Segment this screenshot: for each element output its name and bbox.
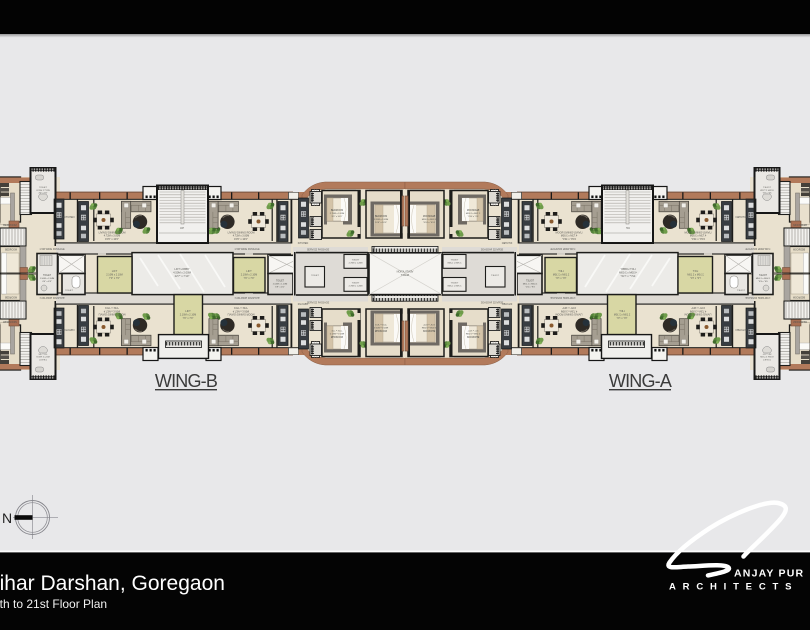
svg-text:3.20M x 3.05M: 3.20M x 3.05M [374, 219, 389, 221]
svg-text:BEDROOM: BEDROOM [331, 209, 343, 212]
svg-text:2.04M x 1.20M: 2.04M x 1.20M [273, 284, 288, 286]
svg-text:UP: UP [180, 226, 184, 230]
svg-text:4'0" x 6'9": 4'0" x 6'9" [42, 281, 52, 283]
svg-text:KITCHEN: KITCHEN [64, 216, 75, 219]
svg-text:4th to 21st Floor Plan: 4th to 21st Floor Plan [0, 597, 107, 611]
svg-text:6'9" x 4'0": 6'9" x 4'0" [275, 286, 285, 288]
svg-text:2.75M x 3.05M: 2.75M x 3.05M [330, 213, 345, 215]
svg-text:2.70M x 1.20M: 2.70M x 1.20M [349, 262, 363, 264]
svg-text:Vihar Darshan, Goregaon: Vihar Darshan, Goregaon [0, 572, 225, 595]
svg-text:WING-A: WING-A [609, 371, 672, 391]
svg-text:WING-B: WING-B [155, 371, 218, 391]
svg-text:1.5M WIDE PASSAGE: 1.5M WIDE PASSAGE [234, 248, 260, 251]
svg-text:7'0" x 7'0": 7'0" x 7'0" [109, 277, 120, 280]
svg-text:15'6" x 10'0": 15'6" x 10'0" [234, 238, 248, 241]
svg-text:2.70M x 1.20M: 2.70M x 1.20M [349, 285, 363, 287]
svg-text:TOILET: TOILET [311, 275, 319, 277]
svg-text:7'0" x 7'0": 7'0" x 7'0" [244, 277, 255, 280]
svg-text:TOILET: TOILET [352, 260, 360, 262]
svg-text:22'7" x 7'10": 22'7" x 7'10" [175, 274, 190, 278]
svg-text:TOILET: TOILET [276, 281, 285, 283]
svg-text:LIFT: LIFT [112, 269, 118, 273]
svg-text:BEDROOM: BEDROOM [5, 250, 17, 252]
svg-text:SERVICE PASSAGE: SERVICE PASSAGE [307, 301, 330, 304]
svg-text:N: N [2, 510, 12, 526]
svg-text:ARCHITECTS: ARCHITECTS [669, 582, 798, 593]
svg-text:TOILET: TOILET [352, 283, 360, 285]
svg-text:SERVICE PASSAGE: SERVICE PASSAGE [307, 248, 330, 251]
svg-text:7'0" x 7'0": 7'0" x 7'0" [183, 317, 194, 320]
svg-text:ANJAY PUR: ANJAY PUR [734, 568, 804, 580]
svg-text:TOILET: TOILET [43, 275, 52, 277]
svg-text:9'0" x 10'0": 9'0" x 10'0" [332, 216, 343, 218]
svg-text:1.5M WIDE PASSAGE: 1.5M WIDE PASSAGE [39, 248, 65, 251]
svg-text:KITCHEN: KITCHEN [298, 242, 309, 245]
svg-text:15'6" x 10'0": 15'6" x 10'0" [105, 238, 119, 241]
svg-text:4.50M x 2.00M: 4.50M x 2.00M [173, 270, 192, 274]
svg-text:LIFT: LIFT [185, 309, 191, 313]
svg-text:TOILET: TOILET [65, 290, 73, 292]
svg-text:1.50M x 2.04M: 1.50M x 2.04M [40, 278, 55, 280]
svg-text:LIFT: LIFT [246, 269, 252, 273]
svg-text:BEDROOM: BEDROOM [375, 215, 387, 218]
svg-text:LIFT LOBBY: LIFT LOBBY [174, 267, 189, 271]
svg-text:BEDROOM: BEDROOM [3, 223, 16, 227]
svg-text:10'6" x 10'0": 10'6" x 10'0" [375, 222, 387, 224]
